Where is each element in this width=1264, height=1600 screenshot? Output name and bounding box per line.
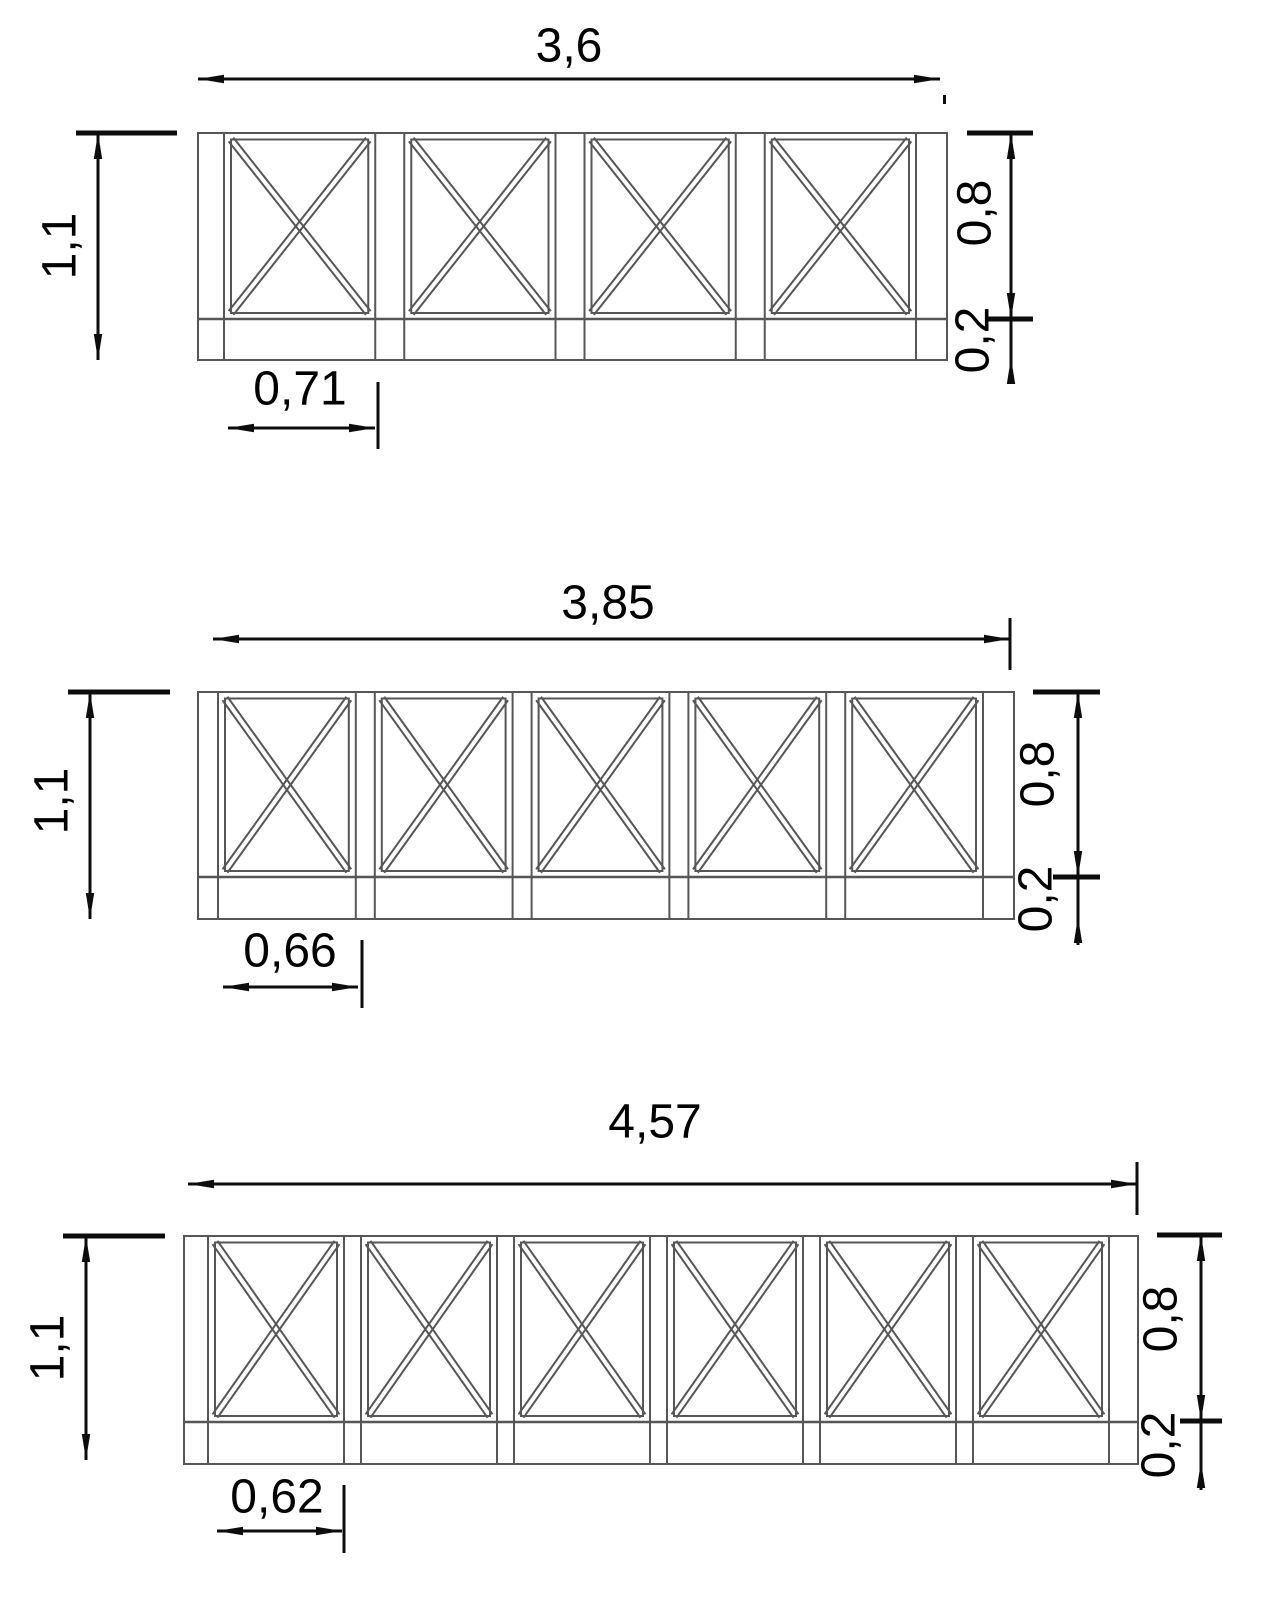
brace-line xyxy=(829,1241,951,1415)
dimension-arrow xyxy=(1074,917,1082,943)
brace-line xyxy=(366,1241,488,1415)
dimension-arrow xyxy=(86,893,94,919)
elevation-drawings-svg: 3,6 1,1 0,8 0,2 0,71 3,85 1,1 0,8 0,2 0,… xyxy=(0,0,1264,1600)
dimension-arrow xyxy=(1197,1395,1205,1421)
brace-line xyxy=(982,1244,1104,1418)
dimension-arrow xyxy=(217,1527,243,1535)
brace-line xyxy=(213,1241,335,1415)
middle-base-height-label: 0,2 xyxy=(1010,866,1063,933)
brace-line xyxy=(774,138,911,312)
brace-line xyxy=(855,700,979,873)
panel-inner-frame xyxy=(411,140,548,314)
brace-line xyxy=(541,700,665,873)
brace-line xyxy=(829,1244,951,1418)
dimension-arrow xyxy=(1111,1180,1137,1188)
dimension-arrow xyxy=(82,1236,90,1262)
brace-line xyxy=(850,697,974,870)
brace-line xyxy=(217,1241,339,1415)
dimension-arrow xyxy=(1197,1462,1205,1488)
brace-line xyxy=(536,697,660,870)
panel-inner-frame xyxy=(225,699,349,872)
brace-line xyxy=(384,697,508,870)
drawing-middle: 3,85 1,1 0,8 0,2 0,66 xyxy=(26,577,1101,1009)
drawing-sheet: 3,6 1,1 0,8 0,2 0,71 3,85 1,1 0,8 0,2 0,… xyxy=(0,0,1264,1600)
dimension-arrow xyxy=(332,983,358,991)
brace-line xyxy=(850,700,974,873)
middle-panel-width-label: 0,66 xyxy=(243,925,336,978)
brace-line xyxy=(379,697,503,870)
panel-inner-frame xyxy=(539,699,663,872)
brace-line xyxy=(769,138,906,312)
brace-line xyxy=(825,1241,947,1415)
brace-line xyxy=(672,1244,794,1418)
brace-line xyxy=(370,1244,492,1418)
dimension-arrow xyxy=(94,133,102,159)
brace-line xyxy=(693,700,817,873)
dimension-arrow xyxy=(1007,358,1015,384)
brace-line xyxy=(523,1241,645,1415)
brace-line xyxy=(217,1244,339,1418)
brace-line xyxy=(982,1241,1104,1415)
bottom-base-height-label: 0,2 xyxy=(1133,1412,1186,1479)
brace-line xyxy=(698,697,822,870)
panel-inner-frame xyxy=(852,699,976,872)
brace-line xyxy=(384,700,508,873)
panel-inner-frame xyxy=(521,1243,643,1417)
panel-inner-frame xyxy=(382,699,506,872)
panel-inner-frame xyxy=(827,1243,949,1417)
brace-line xyxy=(223,700,347,873)
frame-outline xyxy=(198,133,947,360)
brace-line xyxy=(414,141,551,315)
dimension-arrow xyxy=(984,635,1010,643)
dimension-arrow xyxy=(94,334,102,360)
drawing-top: 3,6 1,1 0,8 0,2 0,71 xyxy=(34,20,1034,450)
bottom-total-width-label: 4,57 xyxy=(608,1096,701,1149)
brace-line xyxy=(519,1241,641,1415)
panel-inner-frame xyxy=(592,140,729,314)
top-total-width-label: 3,6 xyxy=(536,20,603,73)
panel-inner-frame xyxy=(215,1243,337,1417)
brace-line xyxy=(223,697,347,870)
panel-inner-frame xyxy=(231,140,368,314)
brace-line xyxy=(227,697,351,870)
frame-outline xyxy=(198,692,1014,919)
brace-line xyxy=(774,141,911,315)
dimension-arrow xyxy=(316,1527,342,1535)
drawing-top-shapes xyxy=(76,75,1033,449)
bottom-total-height-label: 1,1 xyxy=(22,1315,75,1382)
brace-line xyxy=(978,1244,1100,1418)
brace-line xyxy=(379,700,503,873)
brace-line xyxy=(672,1241,794,1415)
top-panel-width-label: 0,71 xyxy=(253,363,346,416)
brace-line xyxy=(594,141,731,315)
top-base-height-label: 0,2 xyxy=(947,307,1000,374)
brace-line xyxy=(227,700,351,873)
dimension-arrow xyxy=(213,635,239,643)
brace-line xyxy=(594,138,731,312)
brace-line xyxy=(366,1244,488,1418)
dimension-arrow xyxy=(86,692,94,718)
brace-line xyxy=(541,697,665,870)
dimension-mark xyxy=(943,95,946,104)
brace-line xyxy=(693,697,817,870)
middle-total-height-label: 1,1 xyxy=(26,768,79,835)
brace-line xyxy=(769,141,906,315)
bottom-panel-width-label: 0,62 xyxy=(230,1471,323,1524)
dimension-arrow xyxy=(914,75,940,83)
brace-line xyxy=(523,1244,645,1418)
panel-inner-frame xyxy=(674,1243,796,1417)
bottom-panel-height-label: 0,8 xyxy=(1135,1286,1188,1353)
brace-line xyxy=(409,141,546,315)
brace-line xyxy=(676,1241,798,1415)
brace-line xyxy=(414,138,551,312)
brace-line xyxy=(233,138,370,312)
brace-line xyxy=(233,141,370,315)
panel-inner-frame xyxy=(368,1243,490,1417)
brace-line xyxy=(409,138,546,312)
panel-inner-frame xyxy=(980,1243,1102,1417)
dimension-arrow xyxy=(1007,133,1015,159)
dimension-arrow xyxy=(1074,851,1082,877)
brace-line xyxy=(519,1244,641,1418)
dimension-arrow xyxy=(228,424,254,432)
brace-line xyxy=(536,700,660,873)
middle-total-width-label: 3,85 xyxy=(561,577,654,630)
brace-line xyxy=(370,1241,492,1415)
dimension-arrow xyxy=(349,424,375,432)
dimension-arrow xyxy=(188,1180,214,1188)
drawing-middle-shapes xyxy=(68,618,1100,1008)
panel-inner-frame xyxy=(695,699,819,872)
dimension-arrow xyxy=(82,1434,90,1460)
brace-line xyxy=(213,1244,335,1418)
brace-line xyxy=(589,138,726,312)
brace-line xyxy=(978,1241,1100,1415)
brace-line xyxy=(698,700,822,873)
dimension-arrow xyxy=(1074,692,1082,718)
brace-line xyxy=(229,141,366,315)
panel-inner-frame xyxy=(772,140,909,314)
brace-line xyxy=(825,1244,947,1418)
brace-line xyxy=(676,1244,798,1418)
drawing-bottom: 4,57 1,1 0,8 0,2 0,62 xyxy=(22,1096,1223,1554)
dimension-arrow xyxy=(1197,1235,1205,1261)
top-total-height-label: 1,1 xyxy=(34,213,87,280)
dimension-arrow xyxy=(1007,293,1015,319)
brace-line xyxy=(855,697,979,870)
dimension-arrow xyxy=(198,75,224,83)
top-panel-height-label: 0,8 xyxy=(949,180,1002,247)
middle-panel-height-label: 0,8 xyxy=(1012,741,1065,808)
dimension-arrow xyxy=(223,983,249,991)
brace-line xyxy=(589,141,726,315)
brace-line xyxy=(229,138,366,312)
